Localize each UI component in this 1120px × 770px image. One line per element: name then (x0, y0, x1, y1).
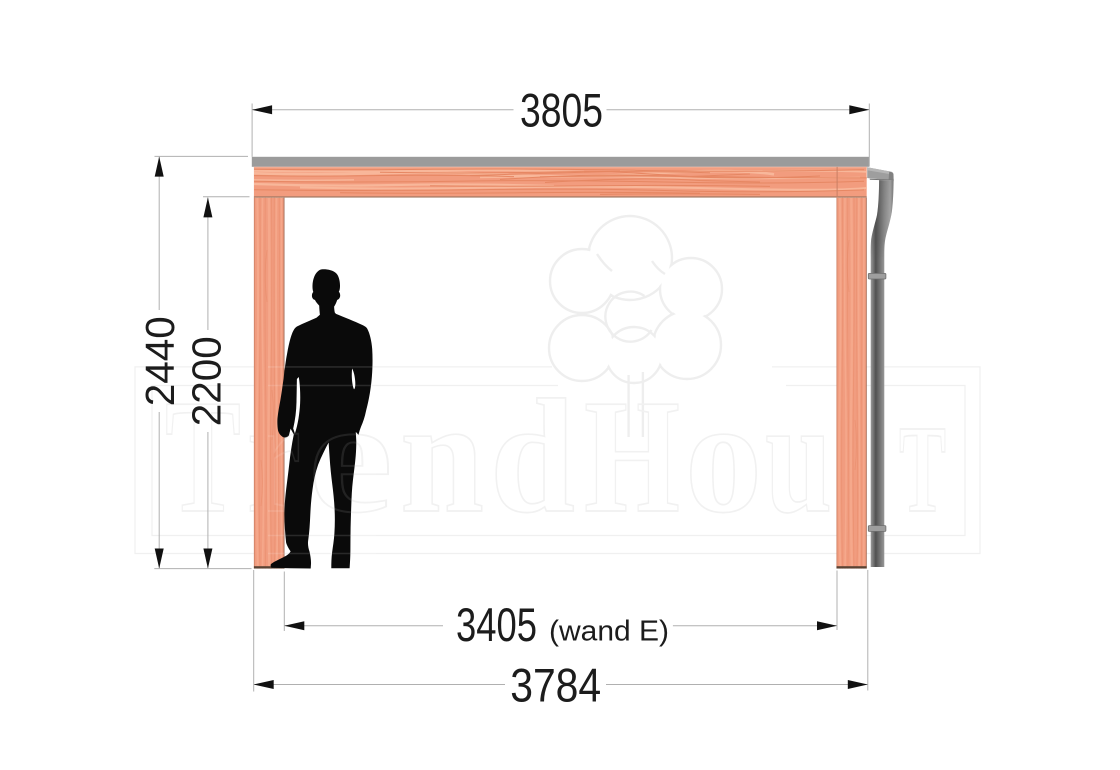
svg-text:3805: 3805 (520, 83, 603, 136)
svg-text:H: H (584, 367, 680, 547)
svg-text:2200: 2200 (184, 336, 230, 426)
svg-text:3784: 3784 (510, 659, 601, 712)
svg-text:2440: 2440 (137, 316, 183, 406)
svg-text:(wand E): (wand E) (549, 616, 669, 648)
svg-text:o: o (685, 367, 762, 547)
svg-text:u: u (765, 367, 832, 547)
svg-text:3405: 3405 (456, 598, 537, 651)
svg-text:d: d (490, 367, 575, 547)
svg-text:n: n (400, 367, 484, 547)
svg-text:T: T (899, 401, 946, 539)
